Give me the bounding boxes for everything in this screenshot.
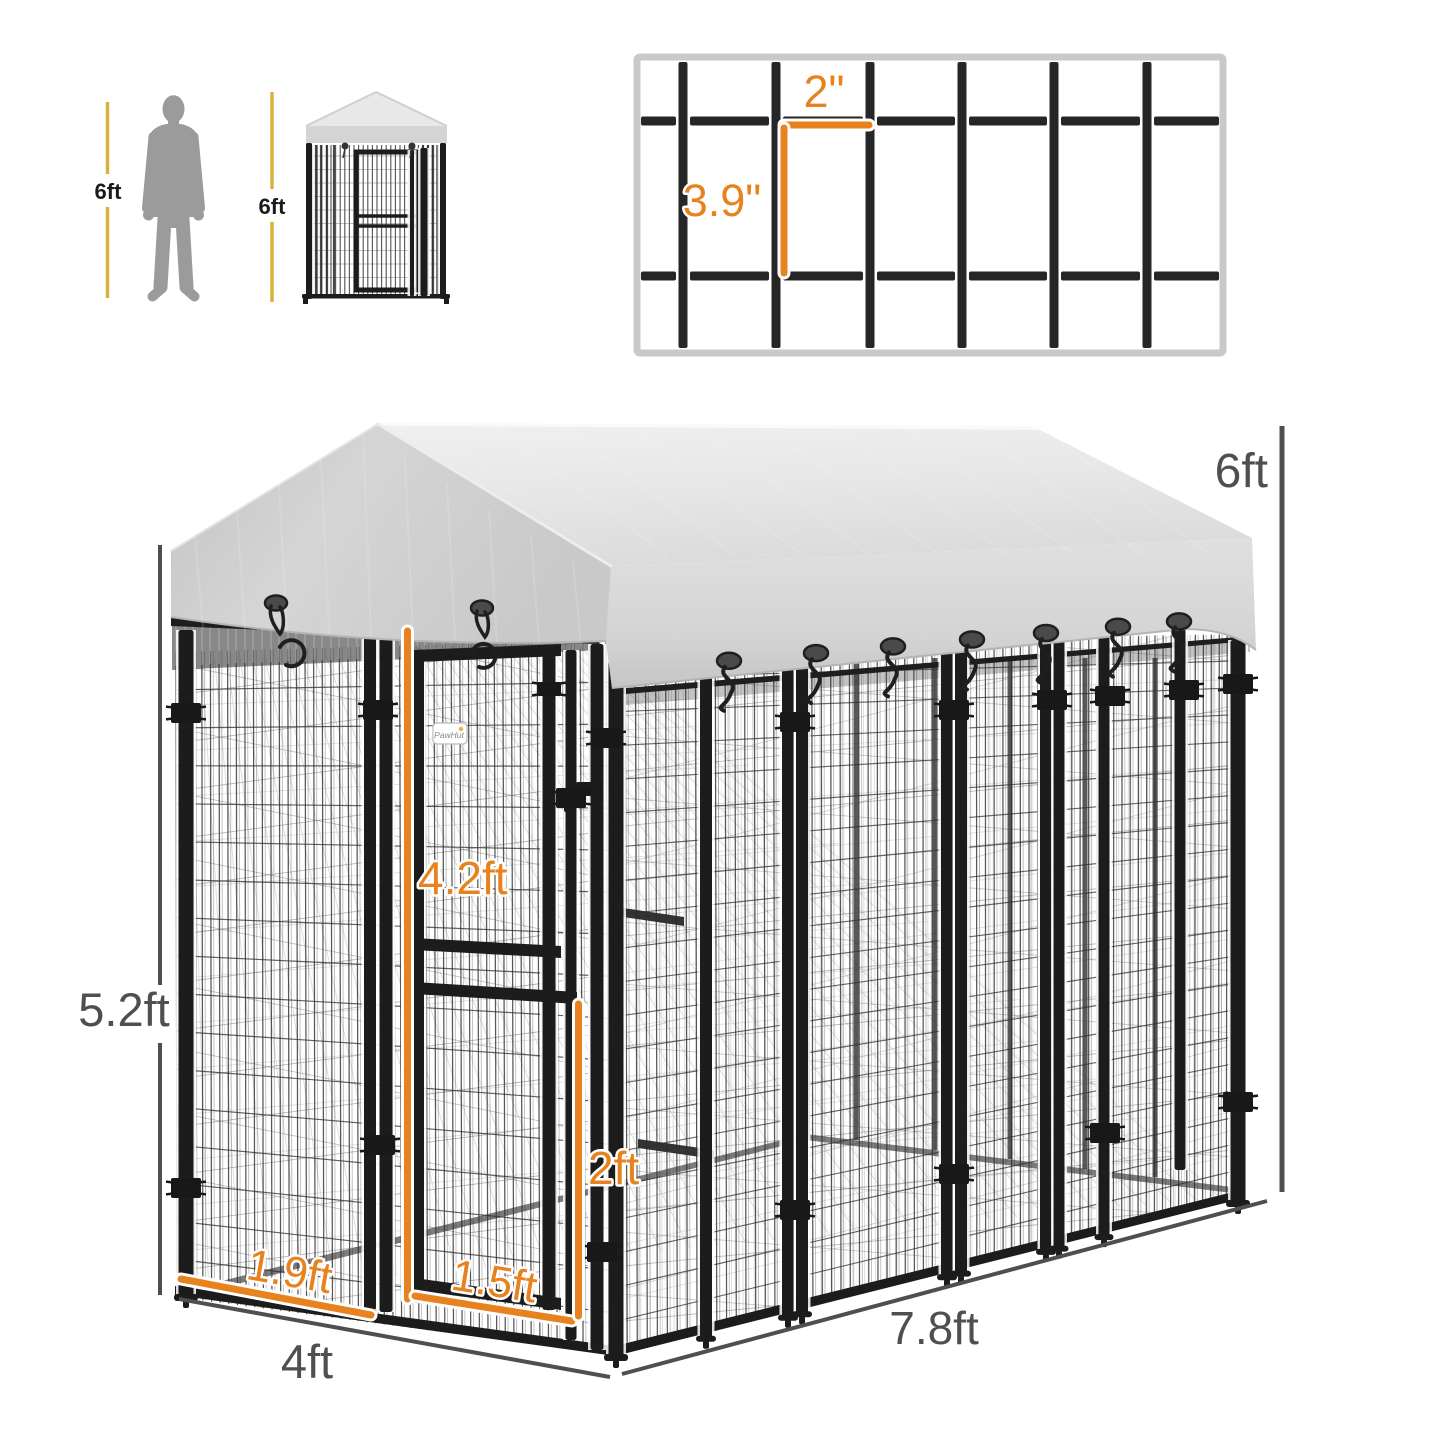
- svg-text:PawHut: PawHut: [434, 730, 464, 740]
- svg-text:4.2ft: 4.2ft: [418, 852, 508, 904]
- svg-text:3.9": 3.9": [683, 175, 762, 226]
- svg-text:6ft: 6ft: [259, 194, 287, 219]
- svg-text:6ft: 6ft: [95, 179, 123, 204]
- svg-text:2ft: 2ft: [588, 1142, 639, 1194]
- svg-text:6ft: 6ft: [1215, 445, 1268, 498]
- svg-text:2": 2": [803, 66, 844, 117]
- svg-text:4ft: 4ft: [281, 1335, 333, 1388]
- svg-text:5.2ft: 5.2ft: [78, 983, 169, 1036]
- svg-text:7.8ft: 7.8ft: [889, 1302, 979, 1354]
